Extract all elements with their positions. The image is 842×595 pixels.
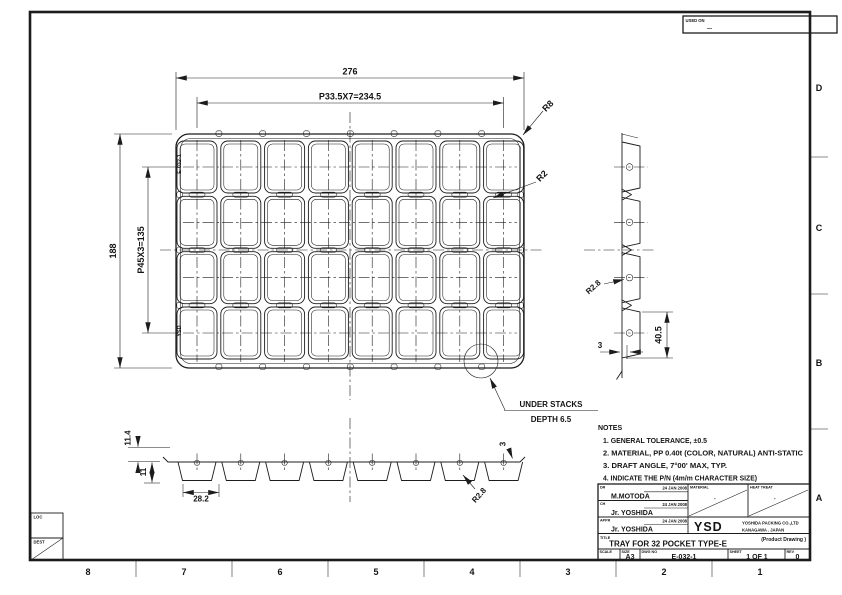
note-item: 2. MATERIAL, PP 0.40t (COLOR, NATURAL) A… <box>603 451 803 458</box>
front-flange-line <box>163 457 525 462</box>
drawn-date: 24 JAN 2008 <box>662 486 687 491</box>
radius-callout-r2: R2 <box>493 168 549 198</box>
size-value: A3 <box>626 554 635 561</box>
side-view: R2.8 3 40.5 <box>584 133 673 380</box>
zone-col-4: 4 <box>469 567 474 577</box>
tray-marking-part-no: E-032-1 <box>177 154 183 174</box>
under-stacks-callout: UNDER STACKS DEPTH 6.5 <box>464 344 598 424</box>
used-on-value: — <box>707 26 712 32</box>
zone-col-8: 8 <box>85 567 90 577</box>
svg-text:R2.8: R2.8 <box>584 278 603 296</box>
approved-label: APPR <box>600 519 611 523</box>
loc-dest-boxes: LOC DEST <box>31 513 63 560</box>
notes: NOTES 1. GENERAL TOLERANCE, ±0.5 2. MATE… <box>598 425 803 483</box>
zone-col-3: 3 <box>565 567 570 577</box>
drawn-label: DR <box>600 486 606 490</box>
svg-text:28.2: 28.2 <box>193 495 209 504</box>
heat-treat-label: HEAT TREAT <box>750 486 774 490</box>
plan-view: 276 P33.5X7=234.5 188 P45X3=135 R8 <box>108 67 598 425</box>
approved-date: 24 JAN 2008 <box>662 519 687 524</box>
zone-col-7: 7 <box>181 567 186 577</box>
heat-treat-value: - <box>774 496 776 502</box>
svg-text:DEPTH 6.5: DEPTH 6.5 <box>531 415 572 424</box>
svg-text:P45X3=135: P45X3=135 <box>136 226 146 273</box>
product-note: (Product Drawing ) <box>761 537 806 543</box>
rev-value: 0 <box>796 554 800 561</box>
scale-label: SCALE <box>600 550 613 554</box>
svg-text:R2.8: R2.8 <box>470 486 488 505</box>
sheet-label: SHEET <box>730 550 743 554</box>
svg-text:40.5: 40.5 <box>654 326 664 344</box>
company-logo: YSD <box>694 520 723 534</box>
checked-date: 24 JAN 2008 <box>662 502 687 507</box>
svg-text:UNDER STACKS: UNDER STACKS <box>520 400 584 409</box>
svg-text:11.4: 11.4 <box>124 430 133 446</box>
loc-label: LOC <box>34 515 43 520</box>
front-view: 11.4 11 28.2 3 R2.8 <box>124 418 526 505</box>
checked-label: CH <box>600 502 606 506</box>
front-radius-callout: R2.8 <box>463 475 489 505</box>
title-block: DR 24 JAN 2008 M.MOTODA CH 24 JAN 2008 J… <box>598 484 810 561</box>
checked-name: Jr. YOSHIDA <box>611 510 653 517</box>
note-item: 1. GENERAL TOLERANCE, ±0.5 <box>603 438 707 445</box>
dim-pocket-pitch-y: P45X3=135 <box>136 167 178 333</box>
company-location: KANAGAWA . JAPAN <box>742 528 784 533</box>
rev-label: REV <box>787 550 795 554</box>
svg-text:3: 3 <box>499 441 508 446</box>
drawing-title: TRAY FOR 32 POCKET TYPE-E <box>609 540 727 549</box>
dwg-no-label: DWG NO <box>642 550 658 554</box>
zone-col-2: 2 <box>661 567 666 577</box>
cad-drawing-sheet: 8 7 6 5 4 3 2 1 D C B A USED ON — LOC DE… <box>0 0 842 595</box>
front-dim-stack: 11.4 <box>124 430 171 470</box>
drawn-name: M.MOTODA <box>611 494 650 501</box>
side-radius-callout: R2.8 <box>584 278 624 296</box>
tray-marking-logo: YSD <box>177 325 183 336</box>
zone-col-1: 1 <box>757 567 762 577</box>
front-dim-pocket: 28.2 <box>183 484 219 504</box>
svg-text:276: 276 <box>342 67 357 77</box>
sheet-border <box>30 12 828 577</box>
notes-title: NOTES <box>598 425 622 432</box>
used-on-label: USED ON <box>686 18 705 23</box>
front-dim-depth: 11 <box>139 463 160 484</box>
sheet-value: 1 OF 1 <box>746 554 768 561</box>
front-dim-lip: 3 <box>499 441 513 458</box>
radius-callout-r8: R8 <box>523 98 555 135</box>
zone-col-6: 6 <box>277 567 282 577</box>
side-dim-flange: 3 <box>598 341 643 359</box>
svg-text:188: 188 <box>108 243 118 258</box>
svg-text:R2: R2 <box>534 168 549 183</box>
zone-row-d: D <box>816 83 823 93</box>
material-value: - <box>714 496 716 502</box>
dwg-no-value: E-032-1 <box>672 554 697 561</box>
note-item: 4. INDICATE THE P/N (4m/m CHARACTER SIZE… <box>603 476 757 483</box>
dest-label: DEST <box>34 540 46 545</box>
svg-text:P33.5X7=234.5: P33.5X7=234.5 <box>319 92 381 102</box>
zone-row-a: A <box>816 493 823 503</box>
side-dim-height: 40.5 <box>626 312 673 358</box>
zone-row-c: C <box>816 223 823 233</box>
note-item: 3. DRAFT ANGLE, 7°00' MAX, TYP. <box>603 462 727 470</box>
zone-col-5: 5 <box>373 567 378 577</box>
approved-name: Jr. YOSHIDA <box>611 527 653 534</box>
used-on-box: USED ON — <box>683 16 837 33</box>
material-label: MATERIAL <box>690 486 710 490</box>
zone-row-b: B <box>816 358 823 368</box>
svg-text:3: 3 <box>598 341 603 350</box>
company-name: YOSHIDA PACKING CO.,LTD <box>742 521 799 526</box>
svg-text:11: 11 <box>139 467 148 476</box>
